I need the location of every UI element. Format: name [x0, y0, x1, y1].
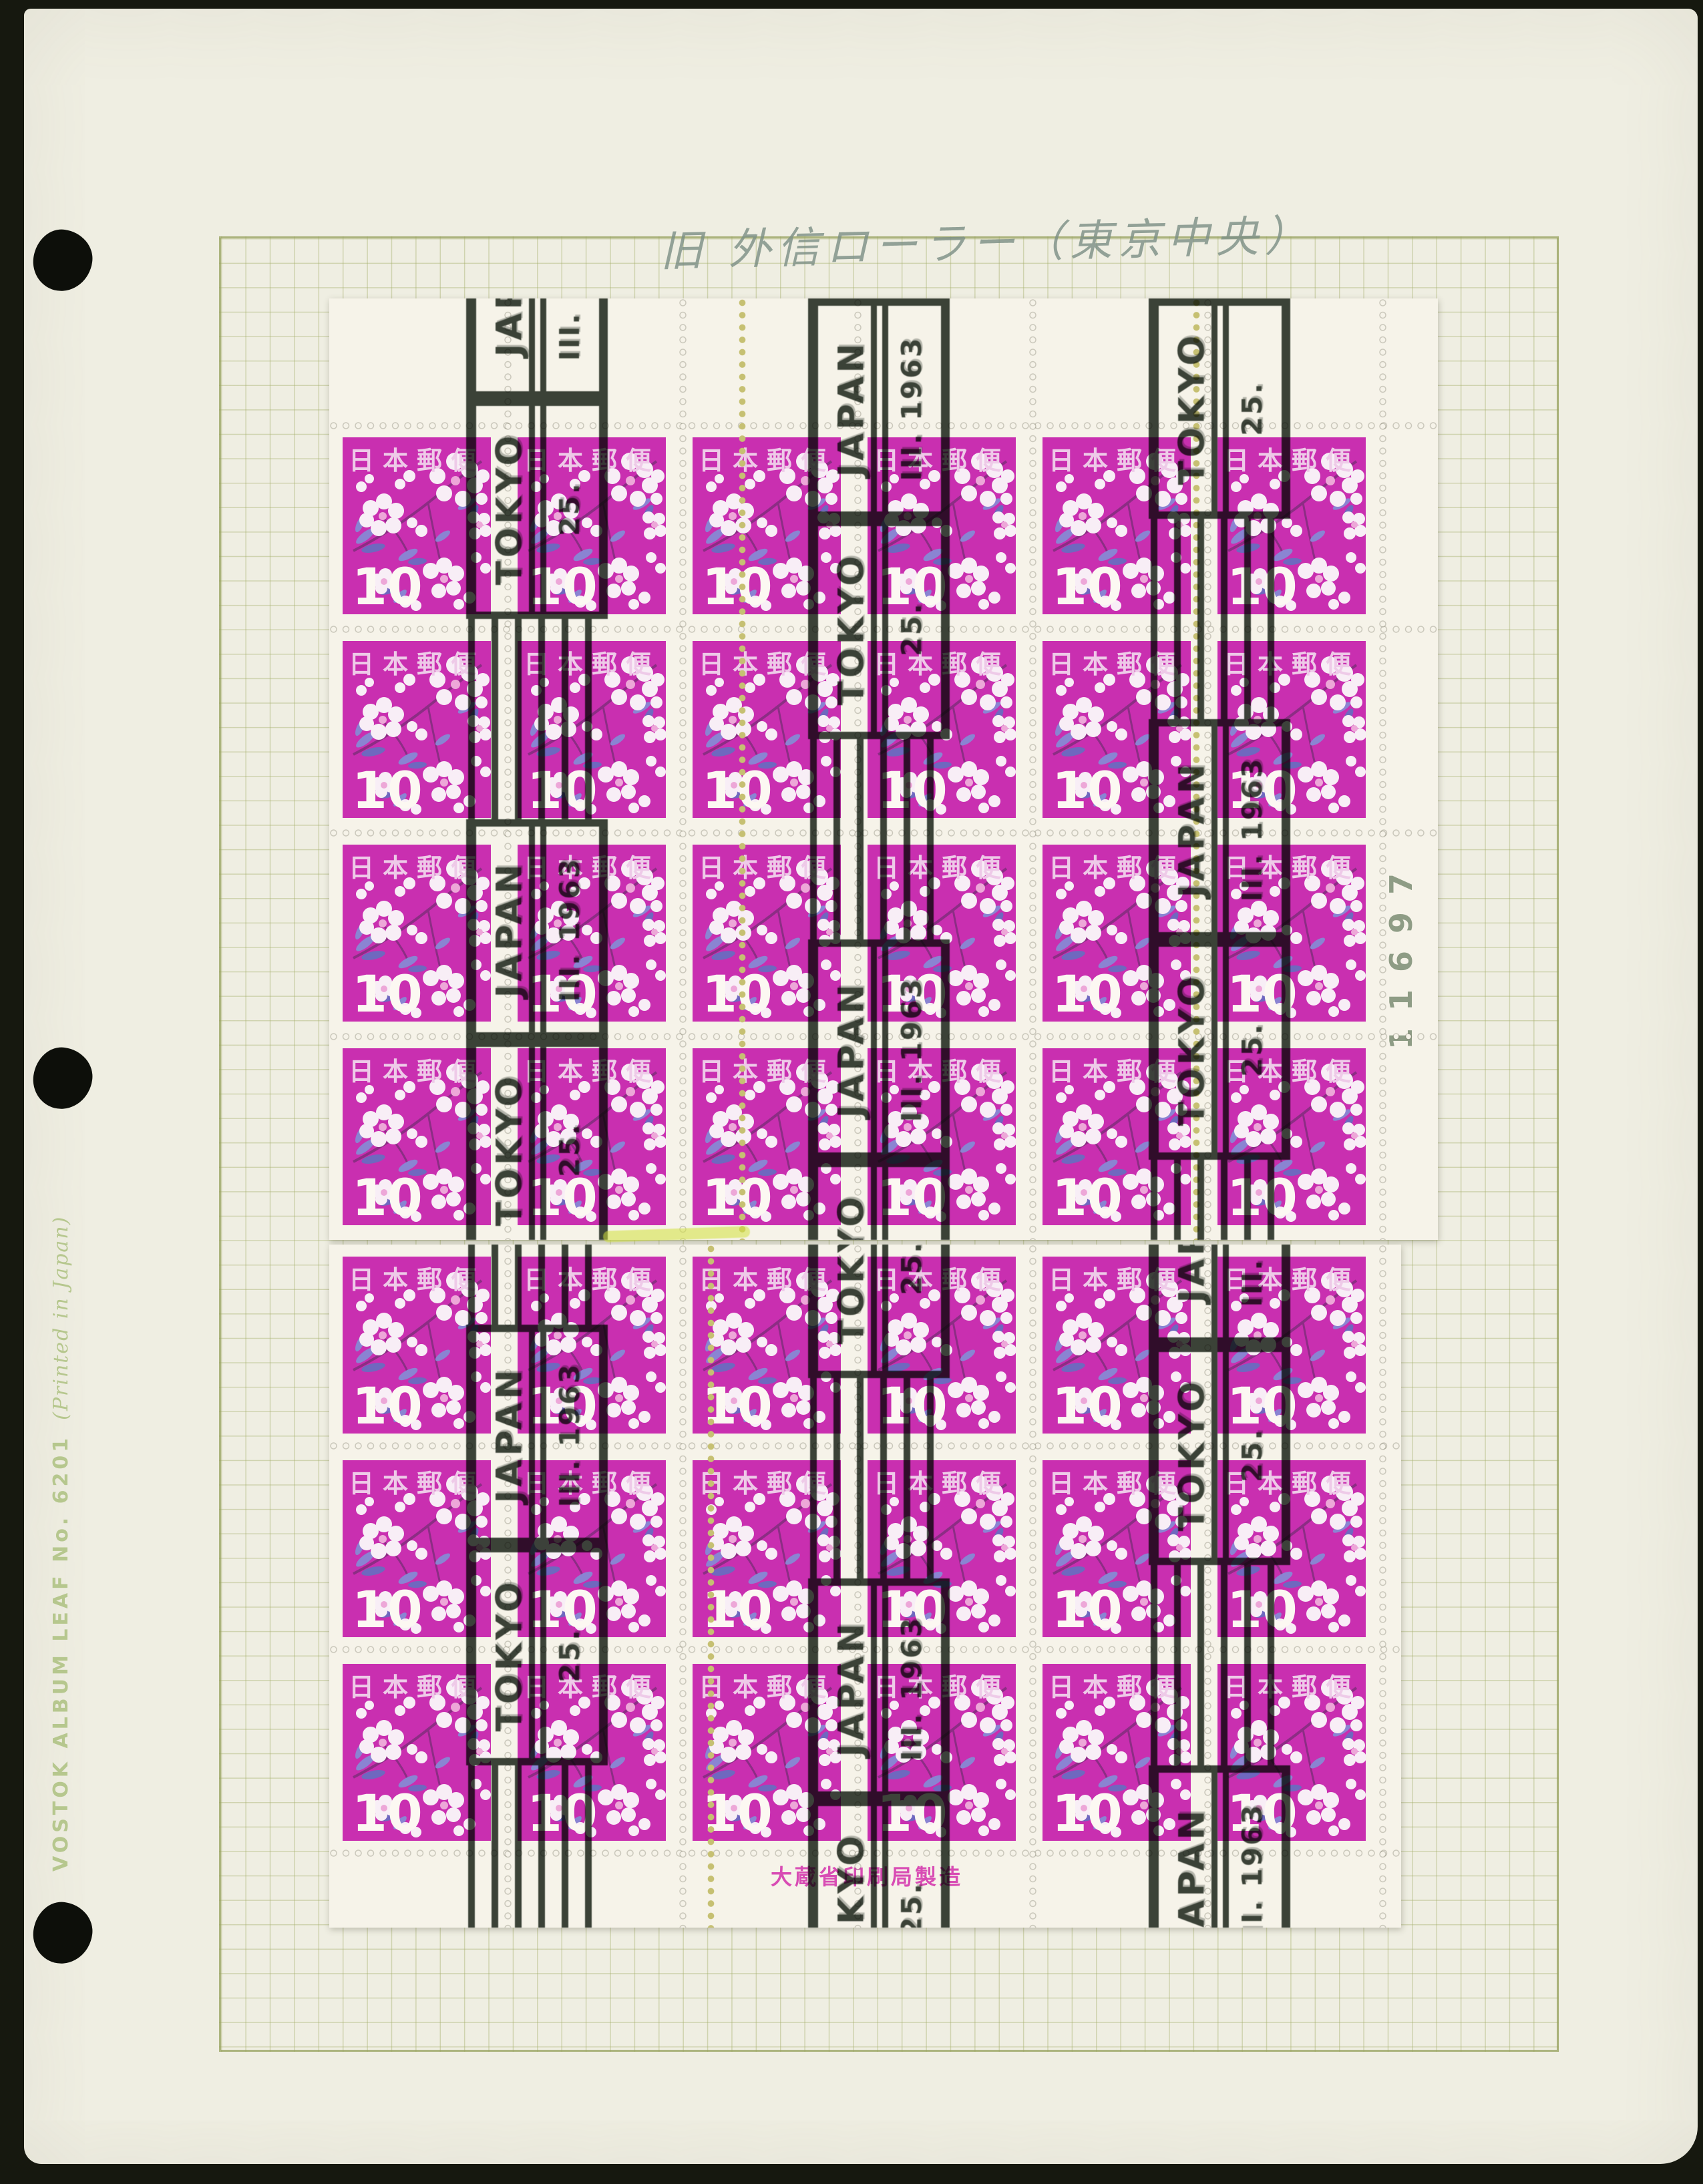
cancel-text-box: TOKYO25.: [466, 1040, 608, 1240]
perforation-column-open: [738, 298, 747, 1240]
cancel-text-box: JAPANIII. 1963: [466, 298, 608, 399]
cancel-divider-bar: [882, 1806, 888, 1928]
cancel-segment: TOKYO25.: [1149, 939, 1290, 1160]
cancel-text-box: TOKYO25.: [808, 1799, 950, 1928]
cancel-divider-bar: [540, 298, 546, 391]
cancel-date-text: 25.: [554, 481, 586, 536]
cancel-date-text: 25.: [896, 602, 928, 656]
cancel-segment: [466, 1245, 608, 1325]
cancel-segment: JAPANIII. 1963: [466, 1325, 608, 1545]
cancel-city-text: TOKYO: [489, 1579, 530, 1732]
cancel-date-text: III. 1963: [554, 298, 586, 361]
cancel-date-text: III. 1963: [896, 1616, 928, 1761]
cancel-city-text: TOKYO: [831, 553, 872, 706]
cancel-text-box: TOKYO25.: [1149, 939, 1290, 1160]
cancel-city-text: JAPAN: [1171, 1807, 1212, 1928]
cancel-text-box: TOKYO25.: [466, 399, 608, 619]
cancel-segment: JAPANIII. 1963: [808, 939, 950, 1160]
roller-cancel-band: TOKYO25.JAPANIII. 1963TOKYO25.: [1149, 298, 1290, 1240]
perforation-column: [1028, 298, 1037, 1240]
perforation-column: [679, 298, 687, 1240]
cancel-date-text: 25.: [896, 1882, 928, 1928]
cancel-segment: [466, 619, 608, 819]
perforation-column: [1378, 298, 1387, 1240]
cancel-divider-bar: [882, 1167, 888, 1240]
roller-cancel-band: TOKYO25.JAPANIII. 1963TOKYO25.: [808, 1245, 950, 1928]
cancel-divider-bar: [1223, 1245, 1229, 1337]
cancel-city-text: TOKYO: [831, 1245, 872, 1344]
cancel-segment: JAPANIII. 1963: [466, 298, 608, 399]
stamp-block-lower: 大蔵省印刷局製造 JAPANIII. 1963TOKYO25.TOKYO25.J…: [329, 1245, 1401, 1928]
cancel-city-text: JAPAN: [489, 1366, 530, 1503]
cancel-segment: JAPANIII. 1963: [1149, 719, 1290, 939]
stamp-block-upper: 11697 JAPANIII. 1963TOKYO25.JAPANIII. 19…: [329, 298, 1438, 1240]
cancel-city-text: JAPAN: [489, 298, 530, 357]
cancel-segment: [808, 739, 950, 939]
binder-punch-hole: [29, 226, 96, 294]
roller-cancel-band: JAPANIII. 1963TOKYO25.: [466, 1245, 608, 1928]
binder-punch-hole: [29, 1044, 96, 1112]
roller-cancel-band: JAPANIII. 1963TOKYO25.JAPANIII. 1963TOKY…: [466, 298, 608, 1240]
cancel-parallel-lines: [1151, 1565, 1288, 1765]
cancel-divider-bar: [1223, 1773, 1229, 1928]
binder-punch-hole: [29, 1898, 96, 1967]
cancel-date-text: III. 1963: [1236, 1803, 1268, 1928]
cancel-segment: TOKYO25.: [466, 1545, 608, 1765]
cancel-city-text: TOKYO: [831, 1194, 872, 1240]
cancel-text-box: TOKYO25.: [808, 519, 950, 739]
cancel-divider-bar: [540, 406, 546, 612]
cancel-divider-bar: [1223, 947, 1229, 1152]
cancel-text-box: TOKYO25.: [1149, 1345, 1290, 1565]
cancel-segment: JAPANIII. 1963: [808, 298, 950, 519]
cancel-divider-bar: [540, 1047, 546, 1240]
cancel-text-box: TOKYO25.: [808, 1245, 950, 1378]
cancel-text-box: JAPANIII. 1963: [808, 939, 950, 1160]
cancel-segment: TOKYO25.: [466, 1040, 608, 1240]
cancel-text-box: TOKYO25.: [808, 1160, 950, 1240]
cancel-parallel-lines: [1151, 519, 1288, 719]
cancel-date-text: 25.: [554, 1122, 586, 1177]
cancel-segment: TOKYO25.: [808, 519, 950, 739]
cancel-segment: TOKYO25.: [808, 1799, 950, 1928]
cancel-segment: [808, 1378, 950, 1578]
cancel-date-text: 25.: [554, 1628, 586, 1683]
cancel-city-text: JAPAN: [489, 861, 530, 998]
cancel-date-text: III. 1963: [1236, 757, 1268, 902]
cancel-parallel-lines: [468, 619, 606, 819]
cancel-city-text: JAPAN: [1171, 760, 1212, 897]
cancel-segment: TOKYO25.: [1149, 298, 1290, 519]
cancel-text-box: JAPANIII. 1963: [466, 819, 608, 1040]
cancel-segment: TOKYO25.: [808, 1160, 950, 1240]
cancel-divider-bar: [540, 1332, 546, 1538]
cancel-divider-bar: [882, 306, 888, 511]
cancel-divider-bar: [1223, 306, 1229, 511]
cancel-divider-bar: [540, 1552, 546, 1758]
cancel-divider-bar: [882, 1586, 888, 1791]
cancel-date-text: III. 1963: [554, 1363, 586, 1508]
cancel-date-text: III. 1963: [896, 337, 928, 481]
cancel-text-box: TOKYO25.: [466, 1545, 608, 1765]
cancel-divider-bar: [1223, 1352, 1229, 1558]
cancel-divider-bar: [1223, 726, 1229, 932]
cancel-text-box: JAPANIII. 1963: [1149, 719, 1290, 939]
cancel-city-text: JAPAN: [831, 1620, 872, 1757]
perforation-column: [1028, 1245, 1037, 1928]
album-stock-label: VOSTOK ALBUM LEAF No. 6201(Printed in Ja…: [49, 1271, 84, 1872]
cancel-segment: JAPANIII. 1963: [1149, 1765, 1290, 1928]
cancel-segment: [466, 1765, 608, 1928]
cancel-segment: [1149, 1565, 1290, 1765]
album-stock-label-main: VOSTOK ALBUM LEAF No. 6201: [49, 1435, 73, 1872]
cancel-parallel-lines: [468, 1245, 606, 1325]
cancel-divider-bar: [882, 526, 888, 732]
cancel-parallel-lines: [1151, 1160, 1288, 1240]
cancel-parallel-lines: [468, 1765, 606, 1928]
cancel-parallel-lines: [810, 739, 948, 939]
cancel-text-box: TOKYO25.: [1149, 298, 1290, 519]
cancel-city-text: JAPAN: [1171, 1245, 1212, 1303]
cancel-parallel-lines: [810, 1378, 948, 1578]
album-page: VOSTOK ALBUM LEAF No. 6201(Printed in Ja…: [24, 9, 1698, 2164]
cancel-segment: [1149, 519, 1290, 719]
perforation-column: [1378, 1245, 1387, 1928]
cancel-divider-bar: [540, 827, 546, 1032]
cancel-segment: JAPANIII. 1963: [1149, 1245, 1290, 1345]
cancel-date-text: 25.: [1236, 1428, 1268, 1482]
album-stock-label-suffix: (Printed in Japan): [49, 1216, 73, 1420]
cancel-divider-bar: [882, 1245, 888, 1371]
cancel-segment: TOKYO25.: [1149, 1345, 1290, 1565]
cancel-date-text: III. 1963: [896, 977, 928, 1122]
roller-cancel-band: JAPANIII. 1963TOKYO25.JAPANIII. 1963: [1149, 1245, 1290, 1928]
photo-background: VOSTOK ALBUM LEAF No. 6201(Printed in Ja…: [0, 0, 1703, 2184]
cancel-date-text: III. 1963: [554, 857, 586, 1002]
cancel-segment: JAPANIII. 1963: [808, 1578, 950, 1799]
cancel-city-text: TOKYO: [489, 1074, 530, 1227]
perforation-column: [679, 1245, 687, 1928]
cancel-city-text: TOKYO: [1171, 333, 1212, 485]
cancel-text-box: JAPANIII. 1963: [466, 1325, 608, 1545]
roller-cancel-band: JAPANIII. 1963TOKYO25.JAPANIII. 1963TOKY…: [808, 298, 950, 1240]
cancel-text-box: JAPANIII. 1963: [1149, 1245, 1290, 1345]
cancel-city-text: JAPAN: [831, 981, 872, 1118]
cancel-city-text: TOKYO: [831, 1833, 872, 1928]
perforation-column-open: [707, 1245, 715, 1928]
cancel-city-text: TOKYO: [489, 433, 530, 586]
cancel-text-box: JAPANIII. 1963: [808, 1578, 950, 1799]
cancel-segment: TOKYO25.: [808, 1245, 950, 1378]
cancel-city-text: JAPAN: [831, 340, 872, 477]
cancel-city-text: TOKYO: [1171, 973, 1212, 1126]
cancel-date-text: III. 1963: [1236, 1245, 1268, 1307]
cancel-date-text: 25.: [896, 1245, 928, 1295]
cancel-segment: [1149, 1160, 1290, 1240]
cancel-text-box: JAPANIII. 1963: [808, 298, 950, 519]
cancel-segment: JAPANIII. 1963: [466, 819, 608, 1040]
plate-number: 11697: [1383, 813, 1419, 1093]
cancel-divider-bar: [882, 947, 888, 1152]
cancel-date-text: 25.: [1236, 381, 1268, 436]
cancel-city-text: TOKYO: [1171, 1379, 1212, 1532]
cancel-text-box: JAPANIII. 1963: [1149, 1765, 1290, 1928]
cancel-date-text: 25.: [1236, 1022, 1268, 1077]
cancel-segment: TOKYO25.: [466, 399, 608, 619]
